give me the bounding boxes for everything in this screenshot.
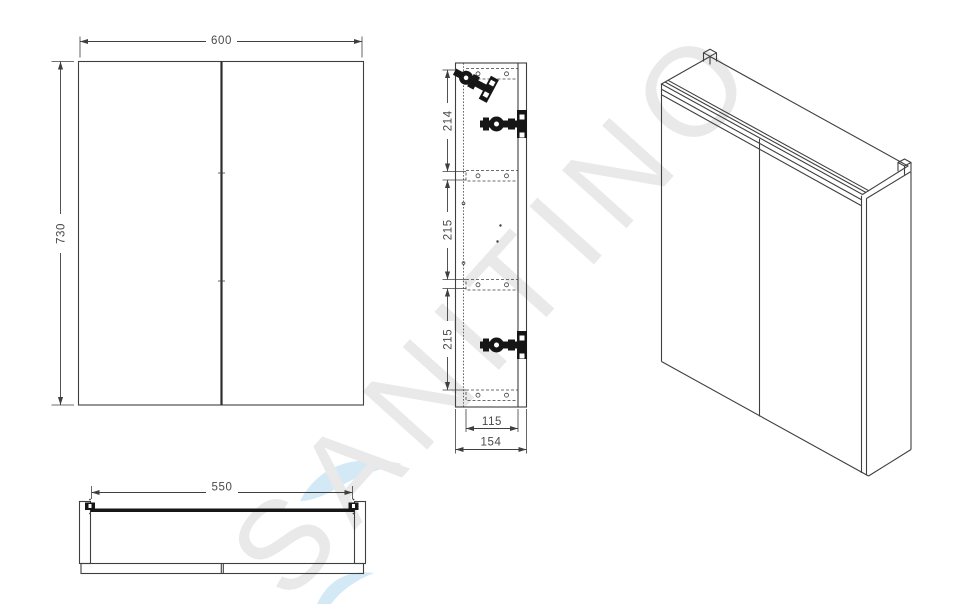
front-width-dimension: 600 [80,33,362,58]
iso-top-rim-2 [668,80,869,191]
iso-top-rim-1 [665,82,866,193]
front-width-value: 600 [211,35,232,47]
top-hinge [449,60,499,103]
front-height-value: 730 [56,223,68,244]
upper-door-hinge [480,110,527,138]
side-segment-bottom-value: 215 [443,329,455,350]
iso-door-top-edge [662,95,861,206]
iso-bracket-back-left [704,49,717,64]
side-segment-top-value: 214 [443,110,455,131]
iso-bottom-edge [662,362,869,477]
door-strip [81,564,364,574]
shelf-line [466,280,518,291]
iso-side-bottom-edge [869,450,912,477]
bottom-view-right-wall [355,502,366,564]
bottom-width-value: 550 [212,482,233,494]
side-view: 214 215 215 115 154 [441,60,527,454]
iso-top-face [662,57,909,195]
side-segment-middle-value: 215 [443,219,455,240]
iso-slab-bottom-edge [662,90,862,201]
side-view-outline [456,63,527,407]
isometric-view [662,49,912,476]
side-height-dimensions: 214 215 215 [441,70,466,390]
technical-drawing-canvas: SANITINO 600 [0,0,960,609]
front-height-dimension: 730 [52,62,75,406]
lower-door-hinge [480,331,527,359]
bottom-view-left-wall [80,502,91,564]
shelf-line [466,390,518,401]
bottom-view: 550 [80,482,366,574]
back-mounting-rail [91,509,355,513]
front-view: 600 730 [52,33,364,405]
iso-side-top-edge [867,172,912,199]
side-depth-value: 154 [481,437,502,449]
bottom-width-dimension: 550 [92,482,353,500]
side-inner-width-value: 115 [482,416,502,428]
side-depth-dimensions: 115 154 [456,409,527,454]
shelf-line [466,171,518,182]
